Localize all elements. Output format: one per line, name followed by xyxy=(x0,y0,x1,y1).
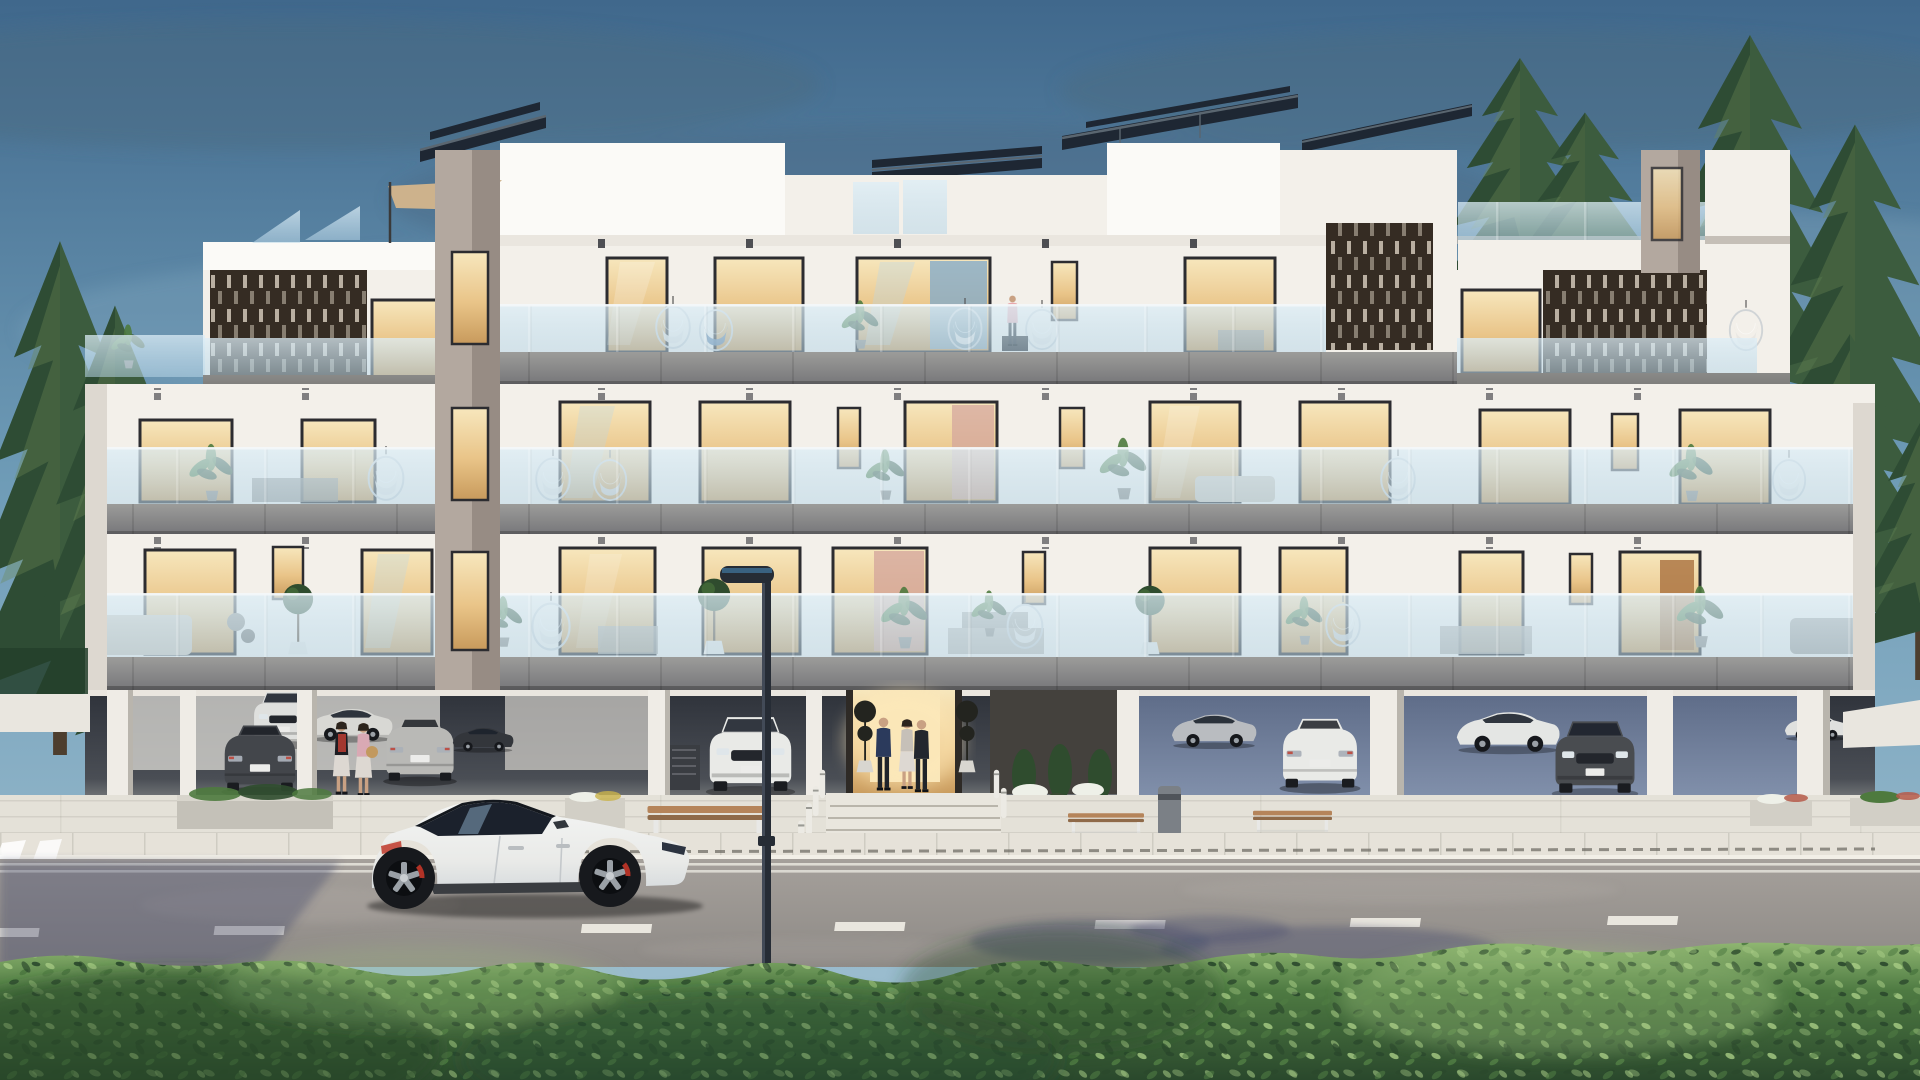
architectural-render xyxy=(0,0,1920,1080)
bollard xyxy=(994,770,999,798)
entrance-lobby xyxy=(844,690,978,796)
glass-stanchions xyxy=(500,305,1326,352)
lamp-base xyxy=(758,836,775,846)
balcony-glass xyxy=(1457,338,1757,375)
floor-2 xyxy=(85,384,1875,535)
balcony-glass xyxy=(85,335,205,377)
stair-window xyxy=(452,252,488,344)
building-left-return xyxy=(85,384,107,690)
roof-corner-volume xyxy=(1705,150,1790,270)
floor-1 xyxy=(85,534,1875,690)
handbag xyxy=(366,746,378,758)
ceiling-downlights xyxy=(120,537,1760,549)
car-wheel-rear xyxy=(373,847,435,909)
car-door-handle xyxy=(556,844,570,848)
render-canvas xyxy=(0,0,1920,1080)
parking-soffit xyxy=(85,690,1875,696)
lamp-glass xyxy=(722,568,772,573)
car-rocker xyxy=(430,882,586,894)
stair-window xyxy=(1652,168,1682,240)
glass-stanchions xyxy=(85,594,1875,658)
roof-penthouse-volume xyxy=(1107,143,1280,243)
left-wing-parapet xyxy=(203,242,445,272)
curb-edge xyxy=(0,855,1920,859)
ceiling-downlights xyxy=(120,388,1760,400)
glass-stanchions xyxy=(85,448,1875,506)
stair-tower-right xyxy=(1641,150,1700,273)
glass-top-rail xyxy=(85,593,1875,596)
building-right-return xyxy=(1853,403,1875,690)
glass-top-rail xyxy=(500,304,1326,307)
vent-grille xyxy=(668,745,700,790)
roof-parapet xyxy=(500,143,785,243)
roof-glass-screen xyxy=(903,180,947,234)
car-wheel-front xyxy=(579,845,641,907)
side-garden-wall xyxy=(0,694,90,732)
stair-window xyxy=(452,408,488,500)
parking-back-wall xyxy=(505,696,648,770)
bollard xyxy=(813,786,819,816)
roof-glass-screen xyxy=(853,182,899,234)
car-door-handle xyxy=(508,846,524,850)
bollard xyxy=(806,803,812,835)
glass-top-rail xyxy=(85,447,1875,450)
stair-tower xyxy=(435,150,500,690)
lattice-screen xyxy=(1326,223,1433,350)
side-garden-bushes xyxy=(0,648,88,698)
flower-planter xyxy=(1750,800,1812,826)
litter-bin xyxy=(1158,786,1181,836)
bollard xyxy=(820,770,825,798)
bollard xyxy=(1001,788,1007,818)
stair-window xyxy=(452,552,488,650)
balcony-glass xyxy=(203,338,445,377)
red-scarf xyxy=(338,734,346,752)
ceiling-downlights xyxy=(500,237,1326,248)
